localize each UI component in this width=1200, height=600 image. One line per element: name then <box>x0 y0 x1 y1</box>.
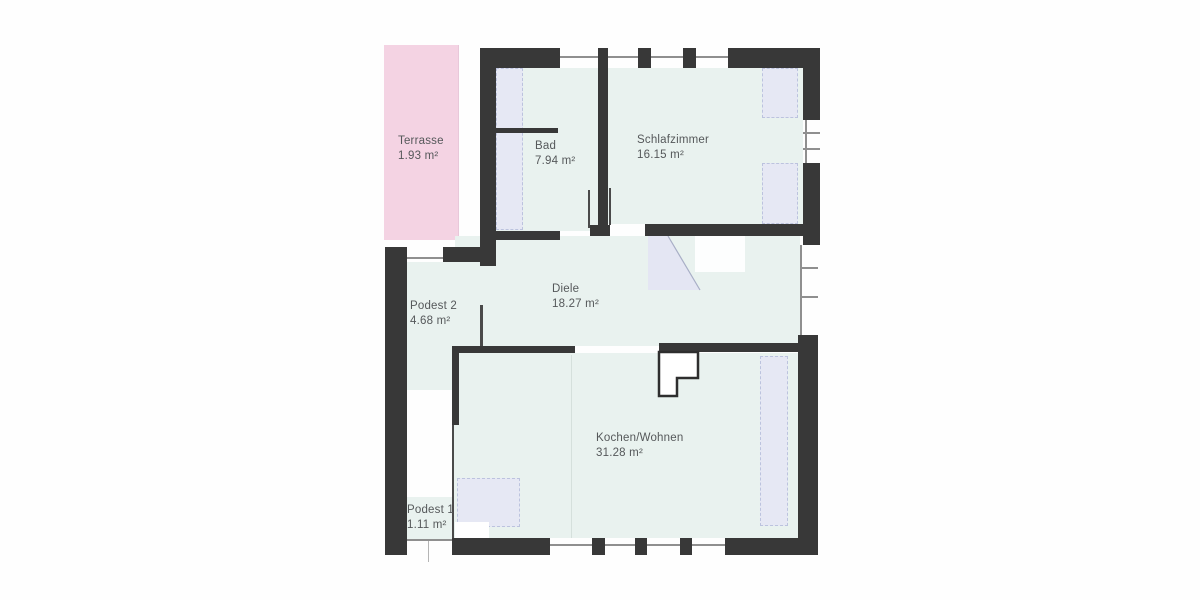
floor-plan: Terrasse 1.93 m² Bad 7.94 m² Schlafzimme… <box>0 0 1200 600</box>
kochen-white-notch <box>455 522 489 538</box>
window-line-bottom <box>605 544 635 546</box>
door-leaf-schlafzimmer <box>609 188 611 225</box>
window-line-right-lower <box>800 245 802 335</box>
window-line-top <box>651 56 683 58</box>
window-line-bottom <box>692 544 725 546</box>
label-podest2: Podest 2 4.68 m² <box>410 299 457 328</box>
window-tick <box>803 132 820 134</box>
grid-line <box>571 355 572 538</box>
room-area: 4.68 m² <box>410 314 457 329</box>
wall-bottom <box>452 538 550 555</box>
label-diele: Diele 18.27 m² <box>552 282 599 311</box>
room-area: 18.27 m² <box>552 297 599 312</box>
room-name: Bad <box>535 139 575 154</box>
room-area: 7.94 m² <box>535 154 575 169</box>
room-area: 1.93 m² <box>398 149 444 164</box>
room-area: 16.15 m² <box>637 148 709 163</box>
room-area: 1.11 m² <box>407 518 454 533</box>
dimension-tick <box>428 541 429 562</box>
schlafzimmer-wardrobe-top <box>762 68 798 118</box>
room-diele <box>455 236 800 346</box>
wall-bottom-pier <box>680 538 692 555</box>
room-name: Diele <box>552 282 599 297</box>
wall-bottom-right <box>725 538 818 555</box>
window-line-top <box>608 56 638 58</box>
kochen-counter-bottomleft <box>457 478 520 527</box>
wall-right-lower <box>798 335 818 555</box>
kochen-counter-strip <box>760 356 788 526</box>
label-terrasse: Terrasse 1.93 m² <box>398 134 444 163</box>
door-leaf-kochen <box>480 305 483 348</box>
bad-dashed-line <box>522 68 523 230</box>
door-swing-schlafzimmer <box>648 236 702 292</box>
window-tick <box>803 148 820 150</box>
wall-schlafzimmer-bottom <box>645 224 803 236</box>
room-area: 31.28 m² <box>596 446 683 461</box>
wall-top-pier <box>683 48 696 68</box>
room-name: Podest 2 <box>410 299 457 314</box>
window-line-bottom <box>647 544 680 546</box>
wall-top-right <box>728 48 820 68</box>
wall-kochen-top-left <box>452 346 575 353</box>
wall-door-foot <box>590 225 610 236</box>
wall-podest2-top <box>443 247 486 262</box>
wall-top-pier <box>638 48 651 68</box>
bad-fixture-strip <box>496 68 523 230</box>
window-line-right-upper <box>805 120 807 163</box>
label-bad: Bad 7.94 m² <box>535 139 575 168</box>
label-podest1: Podest 1 1.11 m² <box>407 503 454 532</box>
room-name: Kochen/Wohnen <box>596 431 683 446</box>
wall-left <box>385 247 407 555</box>
room-name: Terrasse <box>398 134 444 149</box>
wall-right-middle <box>803 163 820 245</box>
room-name: Schlafzimmer <box>637 133 709 148</box>
wall-bottom-pier <box>592 538 605 555</box>
window-tick <box>800 296 818 298</box>
window-line-top <box>560 56 598 58</box>
wall-kochen-left <box>452 346 459 425</box>
label-schlafzimmer: Schlafzimmer 16.15 m² <box>637 133 709 162</box>
chimney <box>657 350 702 400</box>
label-kochen-wohnen: Kochen/Wohnen 31.28 m² <box>596 431 683 460</box>
window-line-bottom <box>550 544 592 546</box>
terrasse-door-line <box>405 257 443 259</box>
wall-bad-partition <box>493 128 558 133</box>
room-name: Podest 1 <box>407 503 454 518</box>
wall-bad-schlafzimmer <box>598 48 608 225</box>
window-line-top <box>696 56 728 58</box>
diele-door-clearance <box>695 234 745 272</box>
door-leaf-bad <box>588 190 590 228</box>
wall-bottom-pier <box>635 538 647 555</box>
schlafzimmer-wardrobe-bottom <box>762 163 798 224</box>
podest1-threshold-line <box>405 539 452 541</box>
wall-bad-bottom <box>483 231 560 240</box>
wall-right-upper <box>803 68 820 120</box>
window-tick <box>800 267 818 269</box>
